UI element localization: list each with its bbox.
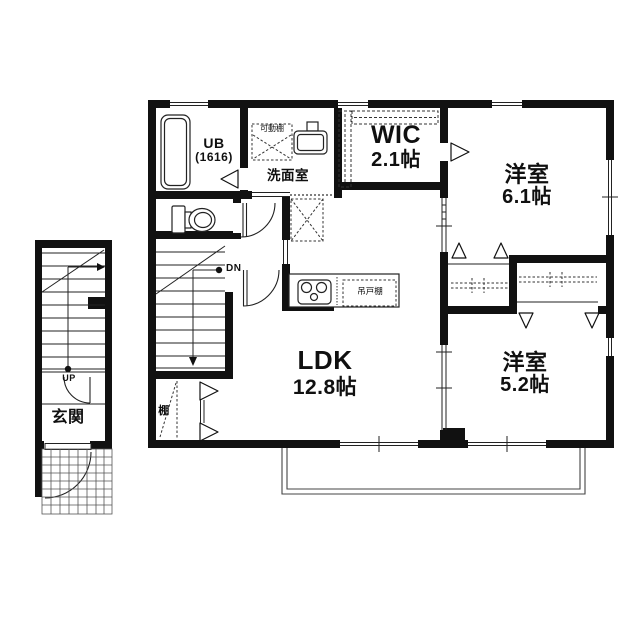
stairs-dn-label: DN bbox=[226, 264, 254, 275]
room-label-entrance: 玄関 bbox=[42, 410, 94, 427]
room-size-ldk: 12.8帖 bbox=[280, 377, 370, 399]
room-label-wic: WIC bbox=[356, 122, 436, 148]
sink-icon bbox=[294, 122, 327, 154]
shelf-label: 棚 bbox=[156, 406, 172, 418]
toilet-icon bbox=[172, 206, 215, 233]
movable-shelf-label: 可動棚 bbox=[252, 125, 292, 133]
room-label-bedroom1: 洋室 bbox=[495, 163, 559, 186]
stairs-up-arrow bbox=[97, 263, 105, 271]
stairs-up-label: UP bbox=[58, 374, 80, 383]
stairs-up-dot bbox=[65, 366, 71, 372]
room-label-bedroom2: 洋室 bbox=[493, 351, 557, 374]
room-label-ub: UB bbox=[190, 136, 238, 151]
wic-door-triangle bbox=[451, 143, 469, 161]
room-size-bedroom1: 6.1帖 bbox=[492, 187, 562, 208]
room-size-ub: (1616) bbox=[186, 151, 242, 164]
porch-tiles bbox=[42, 449, 112, 514]
hanging-cupboard-label: 吊戸棚 bbox=[346, 287, 394, 296]
room-label-washroom: 洗面室 bbox=[258, 169, 318, 183]
floor-plan-drawing bbox=[0, 0, 640, 640]
room-size-wic: 2.1帖 bbox=[352, 150, 440, 171]
closet2-door-triangle bbox=[585, 313, 599, 328]
balcony bbox=[282, 448, 585, 494]
closet1-door-triangle bbox=[452, 243, 466, 258]
stairs-down bbox=[156, 246, 225, 368]
stairs-down-dot bbox=[216, 267, 222, 273]
stairs-up bbox=[42, 250, 105, 369]
floor-plan: UB (1616) 洗面室 可動棚 WIC 2.1帖 洋室 6.1帖 洋室 5.… bbox=[0, 0, 640, 640]
stairs-down-arrow bbox=[189, 357, 197, 366]
refrigerator-space bbox=[291, 199, 323, 241]
room-label-ldk: LDK bbox=[285, 347, 365, 374]
closet-hanger-pipes bbox=[451, 272, 597, 293]
closet1-door-triangle bbox=[494, 243, 508, 258]
shelf-door-triangle bbox=[200, 423, 218, 441]
front-door-arc bbox=[45, 452, 91, 498]
room-size-bedroom2: 5.2帖 bbox=[490, 375, 560, 396]
bath-door-triangle bbox=[221, 170, 238, 188]
ldk-door-arc bbox=[243, 270, 279, 306]
closet2-door-triangle bbox=[519, 313, 533, 328]
shelf-door-triangle bbox=[200, 382, 218, 400]
